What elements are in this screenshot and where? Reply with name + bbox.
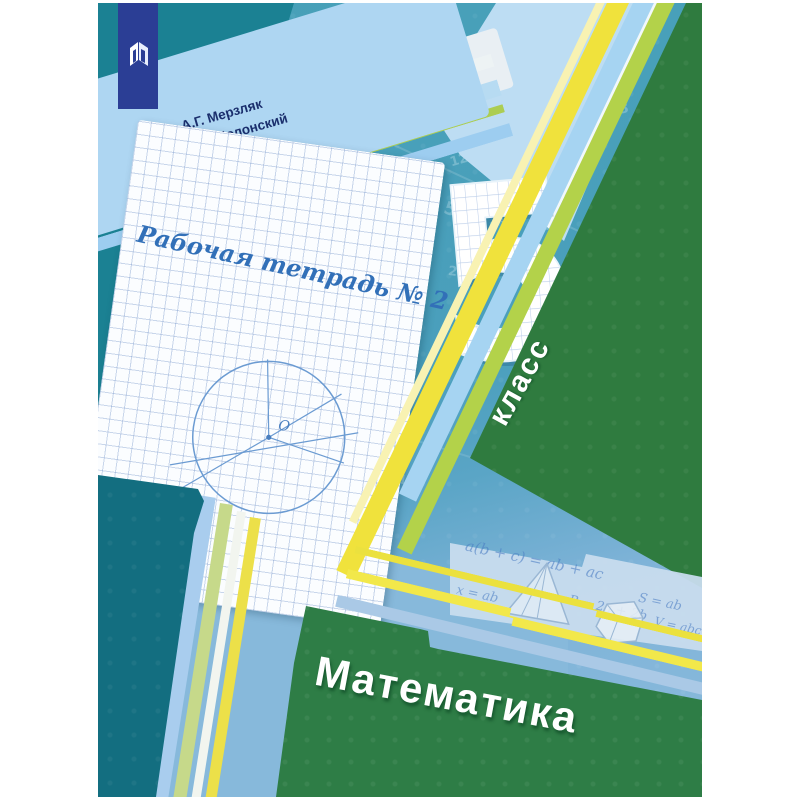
circle-center-label: O: [277, 418, 291, 436]
book-cover-photo: 2 48 7 3 8 245 12 0,215 9 5 0,4 71 6 24 …: [0, 0, 800, 800]
book-cover: 2 48 7 3 8 245 12 0,215 9 5 0,4 71 6 24 …: [98, 3, 702, 797]
publisher-banner: [118, 3, 158, 109]
publisher-logo-icon: [127, 39, 151, 69]
